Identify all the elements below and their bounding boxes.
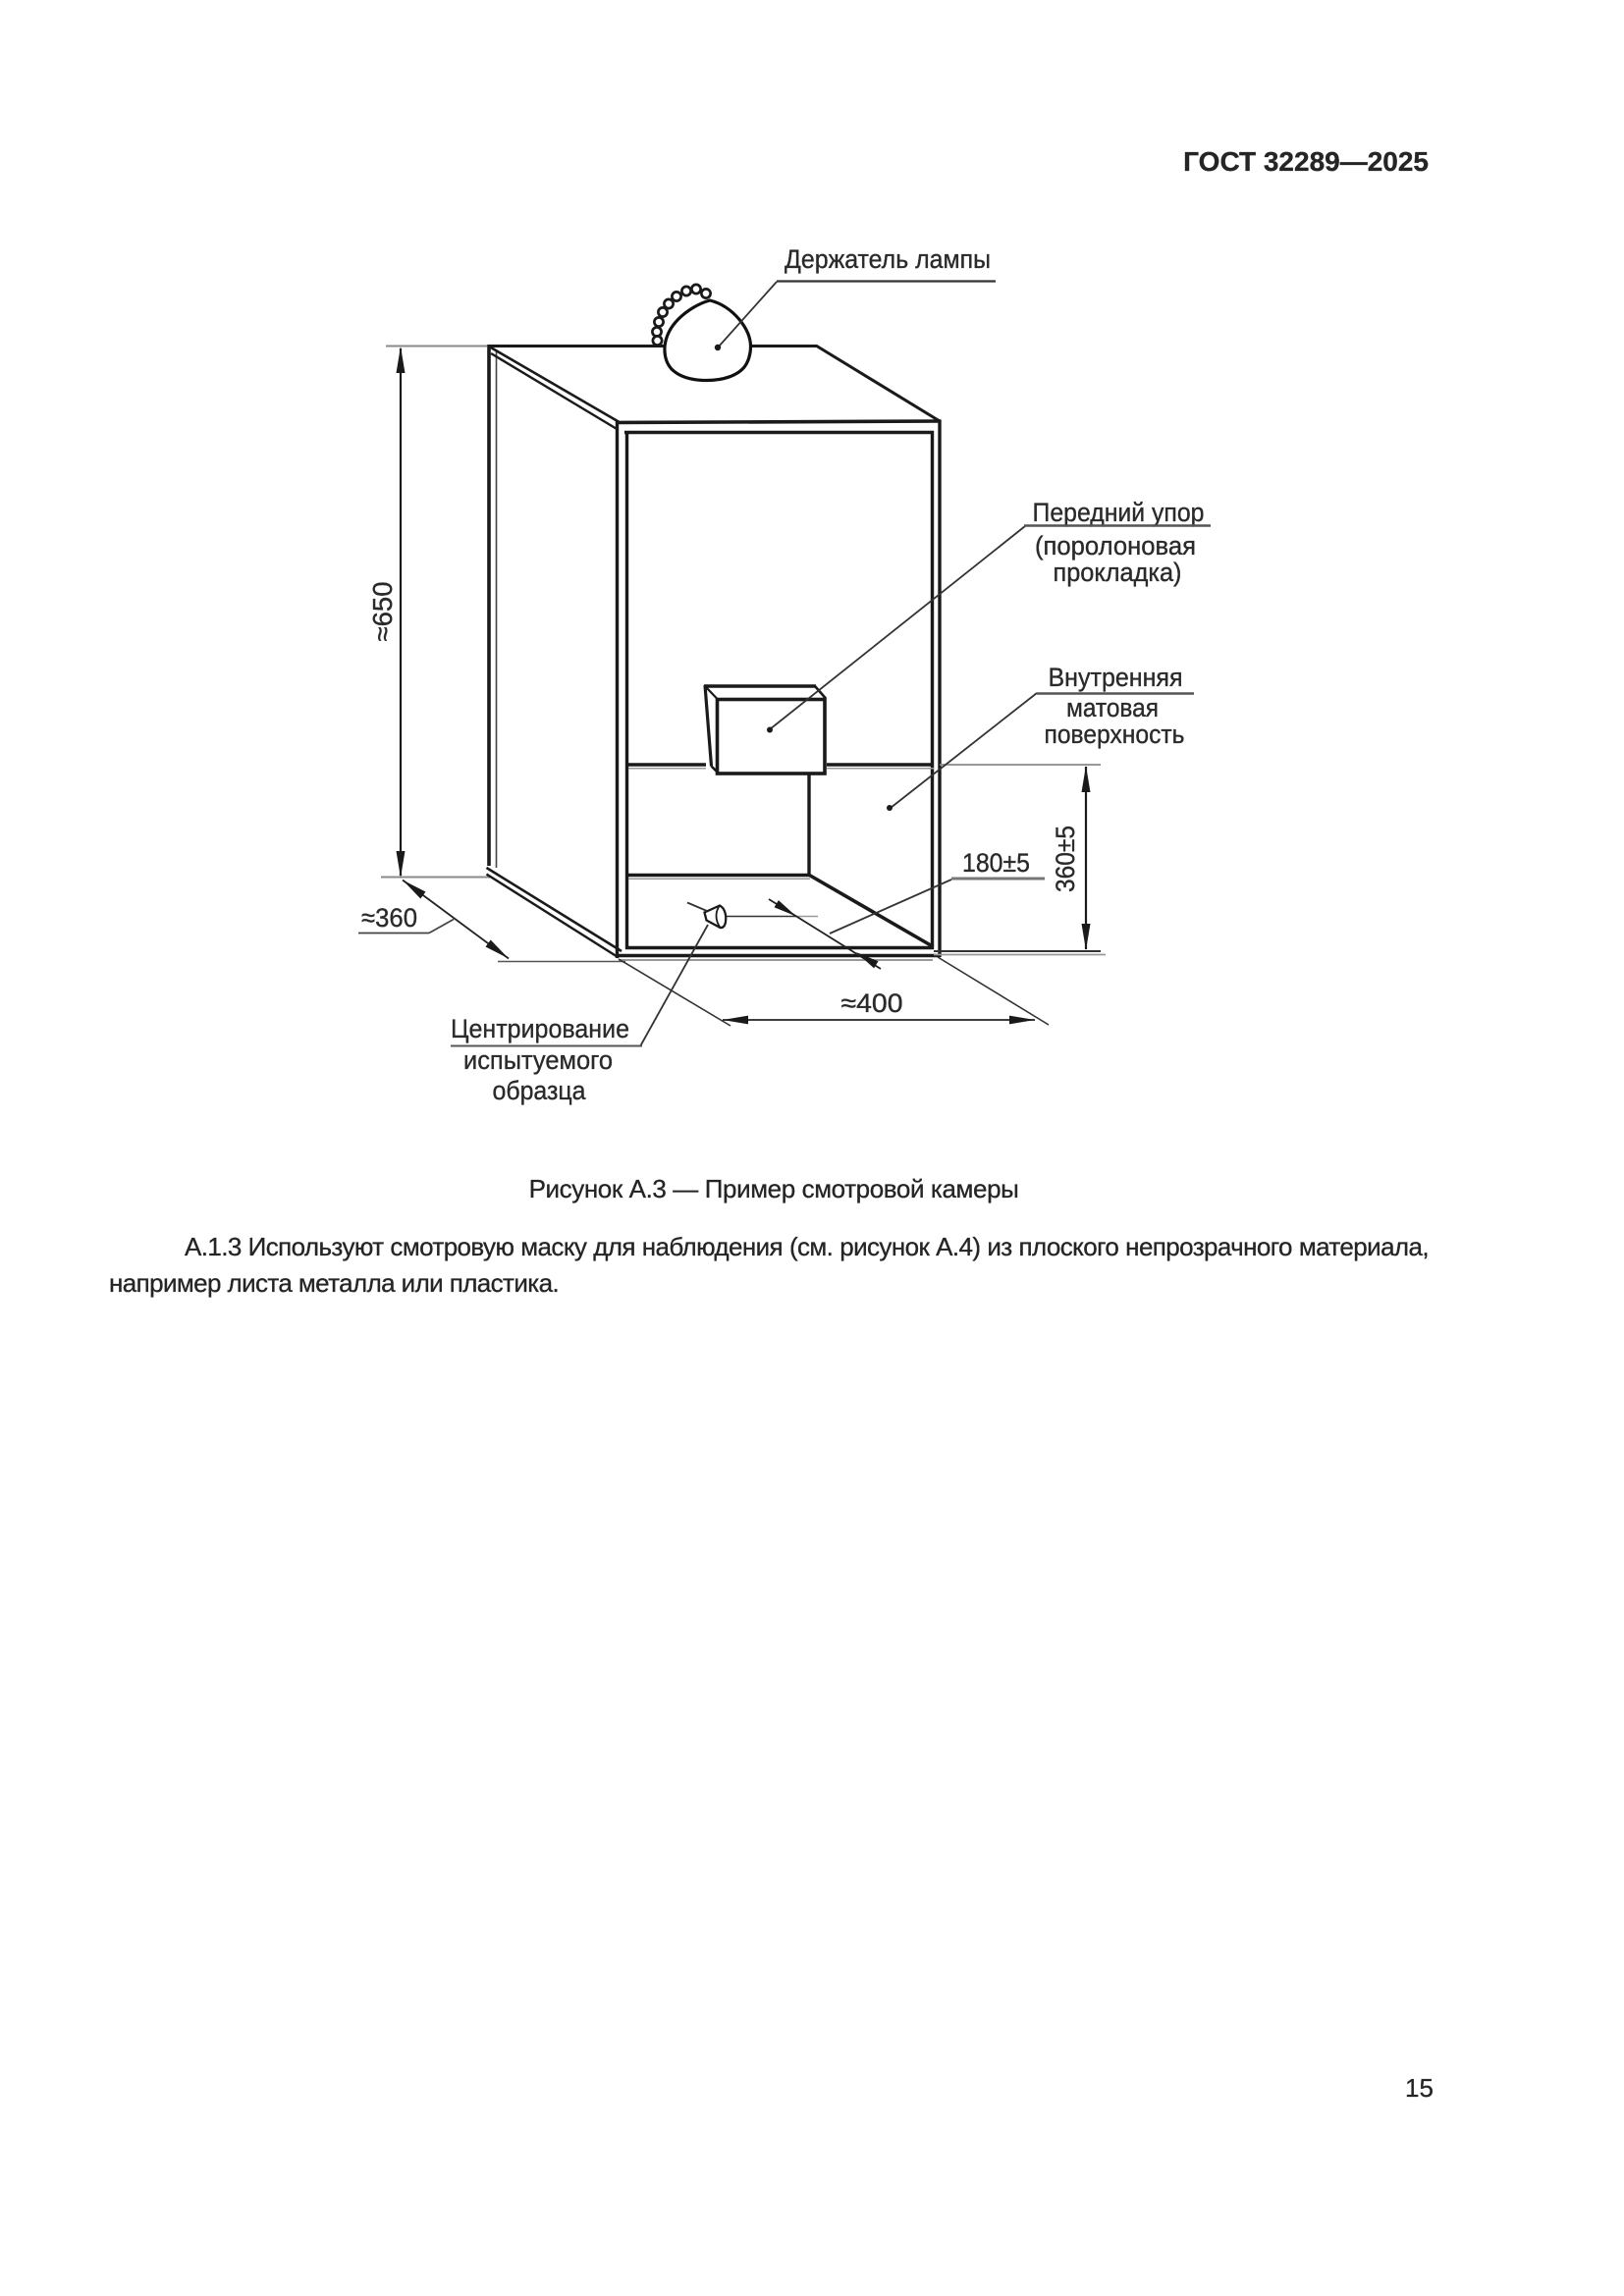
svg-text:прокладка): прокладка) bbox=[1054, 558, 1182, 587]
svg-text:матовая: матовая bbox=[1066, 693, 1159, 722]
svg-text:Внутренняя: Внутренняя bbox=[1049, 663, 1183, 692]
svg-text:Центрирование: Центрирование bbox=[451, 1014, 629, 1043]
svg-text:испытуемого: испытуемого bbox=[463, 1045, 613, 1075]
svg-text:поверхность: поверхность bbox=[1045, 720, 1185, 749]
svg-text:≈360: ≈360 bbox=[361, 903, 417, 933]
svg-text:образца: образца bbox=[493, 1076, 587, 1105]
svg-text:Передний упор: Передний упор bbox=[1033, 498, 1205, 527]
svg-text:≈650: ≈650 bbox=[367, 582, 398, 642]
svg-text:Держатель лампы: Держатель лампы bbox=[785, 244, 991, 274]
svg-text:(поролоновая: (поролоновая bbox=[1035, 531, 1196, 561]
svg-text:180±5: 180±5 bbox=[962, 848, 1030, 878]
svg-text:360±5: 360±5 bbox=[1051, 826, 1080, 892]
svg-text:≈400: ≈400 bbox=[841, 988, 903, 1018]
